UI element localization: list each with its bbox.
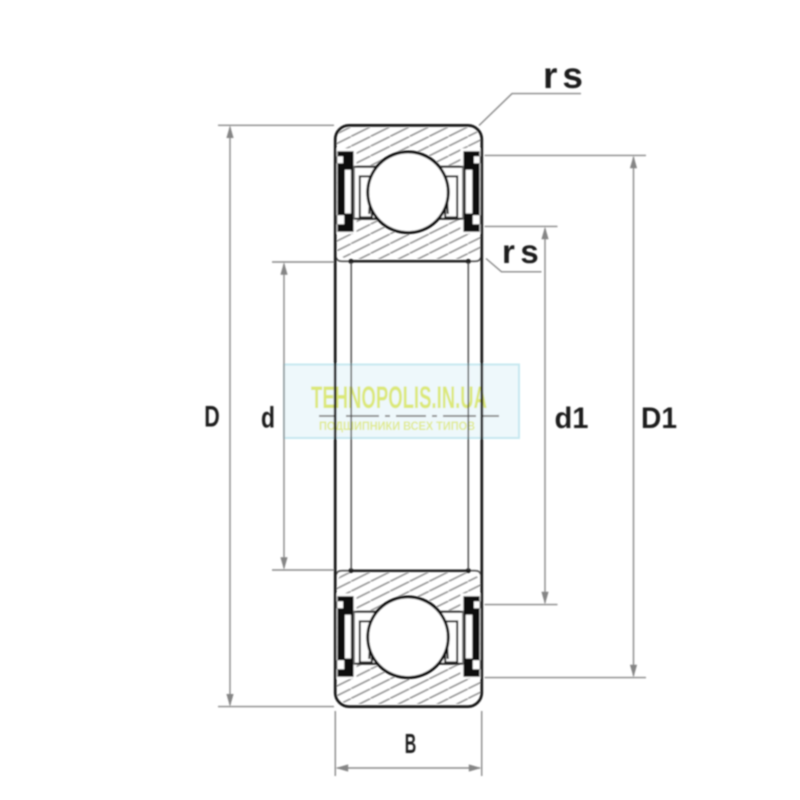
svg-text:rs: rs bbox=[502, 233, 544, 270]
svg-text:d: d bbox=[261, 402, 275, 435]
svg-text:ПОДШИПНИКИ ВСЕХ ТИПОВ: ПОДШИПНИКИ ВСЕХ ТИПОВ bbox=[319, 421, 475, 433]
svg-text:D: D bbox=[204, 401, 220, 434]
svg-text:B: B bbox=[405, 728, 417, 759]
svg-text:rs: rs bbox=[543, 55, 588, 96]
svg-text:d1: d1 bbox=[555, 402, 589, 435]
svg-text:D1: D1 bbox=[641, 402, 677, 435]
svg-text:TEHNOPOLIS.IN.UA: TEHNOPOLIS.IN.UA bbox=[311, 379, 487, 415]
